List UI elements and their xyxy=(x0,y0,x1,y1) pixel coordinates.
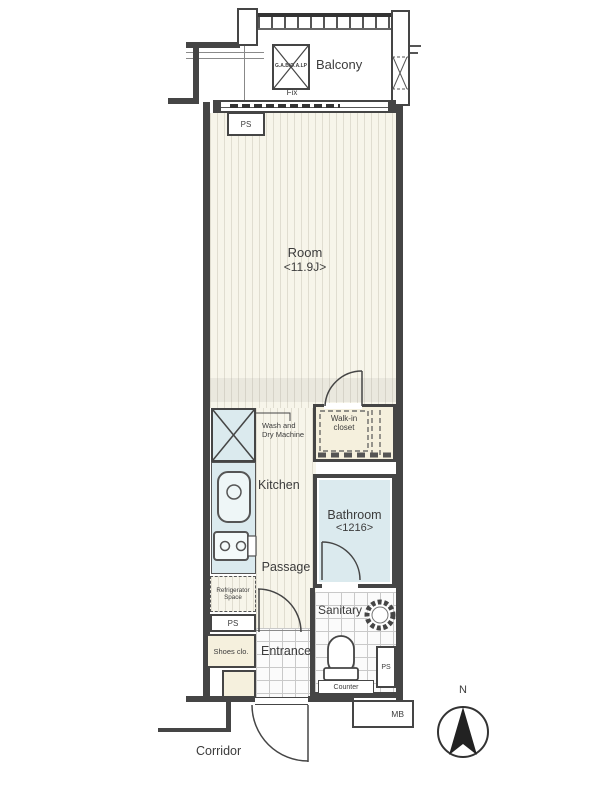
watermark xyxy=(210,378,396,402)
pipe-space-lower-label: PS xyxy=(228,619,239,628)
kitchen-counter xyxy=(211,462,256,574)
shoes-closet-lower xyxy=(222,670,256,698)
entrance-floor xyxy=(256,628,310,700)
corridor-wall-vertical xyxy=(226,702,231,730)
refrigerator-label-line1: Refrigerator xyxy=(216,587,249,595)
pipe-space-sanitary: PS xyxy=(376,646,396,688)
front-door xyxy=(252,705,308,762)
window-end-block xyxy=(213,102,221,111)
pipe-space-lower: PS xyxy=(210,614,256,632)
balcony-right-column xyxy=(391,10,410,106)
compass-north-label: N xyxy=(452,684,474,697)
meter-box-label: MB xyxy=(391,709,404,719)
wic-label: Walk-in closet xyxy=(320,414,368,432)
entrance-step-line xyxy=(256,630,310,631)
balcony-label: Balcony xyxy=(316,58,362,73)
room-name: Room xyxy=(250,246,360,261)
refrigerator-label-line2: Space xyxy=(216,594,249,602)
hatch-label: G.A.B/O.A.LP xyxy=(275,64,307,70)
entrance-label: Entrance xyxy=(250,644,322,658)
wic-label-line2: closet xyxy=(320,423,368,432)
room-label: Room <11.9J> xyxy=(250,246,360,275)
wic-door-opening xyxy=(324,403,362,409)
counter-label: Counter xyxy=(334,684,359,691)
sanitary-left-wall xyxy=(310,588,315,694)
compass-icon xyxy=(438,707,488,757)
balcony-railing xyxy=(258,13,391,30)
bottom-wall-left xyxy=(186,696,255,702)
kitchen-label: Kitchen xyxy=(258,478,300,492)
passage-label: Passage xyxy=(254,560,318,574)
pipe-space-sanitary-label: PS xyxy=(381,664,390,671)
evacuation-hatch: G.A.B/O.A.LP xyxy=(272,44,310,90)
corridor-wall-horizontal xyxy=(158,728,231,732)
washer-dryer-space xyxy=(211,408,256,462)
floor-plan: G.A.B/O.A.LP Balcony Fix PS Room <11.9J>… xyxy=(0,0,600,800)
bottom-wall-right xyxy=(308,696,354,702)
pipe-space-top: PS xyxy=(227,112,265,136)
bathroom-door-opening xyxy=(322,583,358,589)
sanitary-label: Sanitary xyxy=(318,604,362,618)
laundry-label: Wash and Dry Machine xyxy=(262,421,304,439)
meter-box: MB xyxy=(352,700,414,728)
bathroom-label: Bathroom <1216> xyxy=(313,508,396,535)
shoes-closet: Shoes clo. xyxy=(206,634,256,668)
right-outer-wall xyxy=(396,104,403,703)
window-end-block xyxy=(388,102,396,111)
laundry-label-line1: Wash and xyxy=(262,421,304,430)
bathroom-name: Bathroom xyxy=(313,508,396,522)
room-size: <11.9J> xyxy=(250,261,360,275)
front-door-threshold xyxy=(255,697,308,705)
corridor-label: Corridor xyxy=(196,744,241,758)
wic-label-line1: Walk-in xyxy=(320,414,368,423)
neighbor-wall-step xyxy=(168,98,198,104)
neighbor-wall-left xyxy=(193,42,199,104)
pipe-space-top-label: PS xyxy=(241,120,252,129)
bathroom-size: <1216> xyxy=(313,522,396,535)
walk-in-closet xyxy=(313,404,396,462)
window-curtain-box xyxy=(230,104,340,108)
balcony-left-column xyxy=(237,8,258,46)
passage-floor xyxy=(256,408,316,633)
left-outer-wall xyxy=(203,102,210,702)
refrigerator-label: Refrigerator Space xyxy=(216,587,249,602)
laundry-label-line2: Dry Machine xyxy=(262,430,304,439)
shoes-closet-label: Shoes clo. xyxy=(213,647,248,656)
refrigerator-space: Refrigerator Space xyxy=(210,576,256,612)
fix-window-label: Fix xyxy=(272,88,312,97)
counter: Counter xyxy=(318,680,374,694)
